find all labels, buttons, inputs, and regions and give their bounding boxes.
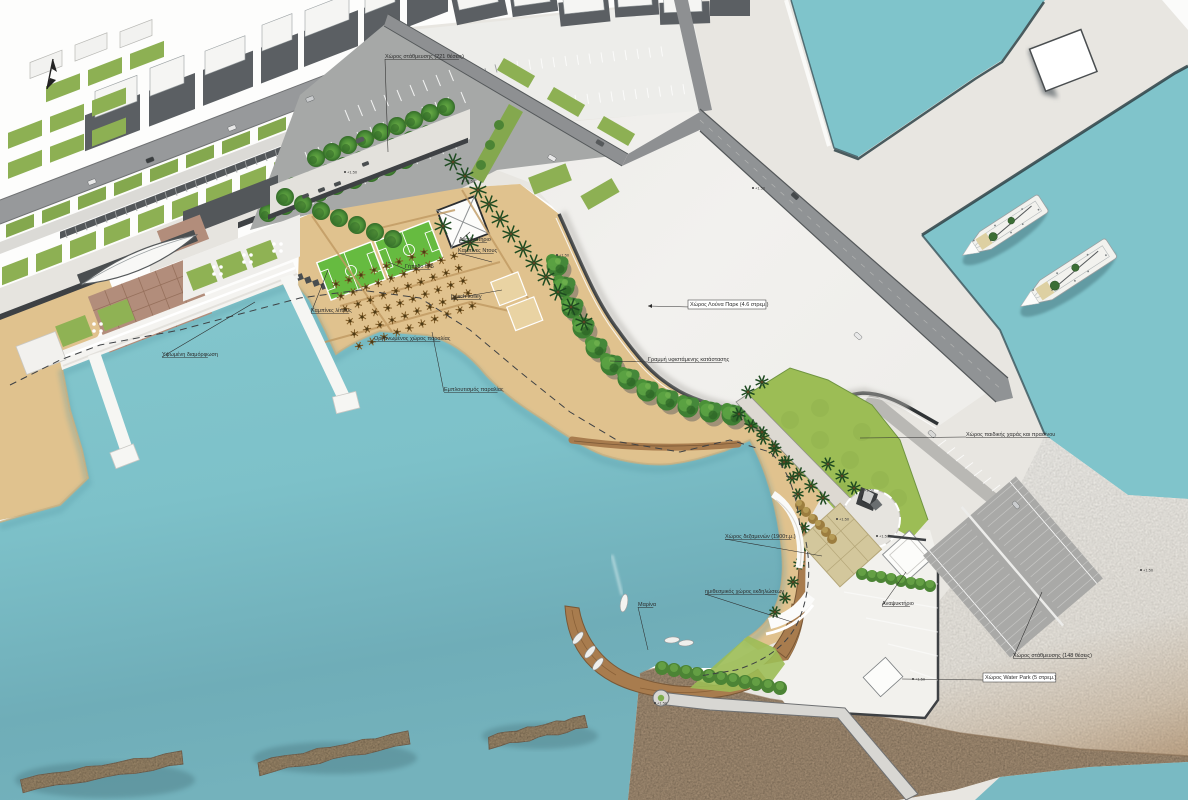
svg-text:+1.50: +1.50 [657,701,668,706]
svg-text:+1.50: +1.50 [879,534,890,539]
svg-text:Καμπίνες Ντους: Καμπίνες Ντους [458,248,497,254]
svg-text:Υψωμένη διαμόρφωση: Υψωμένη διαμόρφωση [162,351,218,358]
svg-text:Χώρος στάθμευσης (221 θέσεις): Χώρος στάθμευσης (221 θέσεις) [385,53,464,60]
svg-text:beach volley: beach volley [451,294,482,300]
svg-text:ημιθεσμικός χώρος εκδηλώσεων: ημιθεσμικός χώρος εκδηλώσεων [705,588,784,595]
svg-text:Καμπίνες λίπους: Καμπίνες λίπους [311,308,352,314]
svg-text:Χώρος Water Park (5 στρεμ.): Χώρος Water Park (5 στρεμ.) [985,674,1056,681]
svg-text:Οργανωμένος χώρος παραλίας: Οργανωμένος χώρος παραλίας [374,335,451,342]
svg-text:+1.50: +1.50 [1143,568,1154,573]
svg-text:Γήπεδο 5x5: Γήπεδο 5x5 [405,263,434,270]
svg-text:+1.50: +1.50 [347,170,358,175]
svg-text:Χώρος στάθμευσης (148 θέσεις): Χώρος στάθμευσης (148 θέσεις) [1013,652,1092,659]
svg-text:Αναψυκτήριο: Αναψυκτήριο [459,236,491,243]
svg-text:Γραμμή υφιστάμενης κατάστασης: Γραμμή υφιστάμενης κατάστασης [648,356,730,363]
svg-text:Χώρος παιδικής χαράς και πρασί: Χώρος παιδικής χαράς και πρασίνου [966,431,1055,438]
svg-text:+1.50: +1.50 [559,253,570,258]
svg-text:Αναψυκτήριο: Αναψυκτήριο [882,600,914,607]
svg-text:+1.50: +1.50 [839,517,850,522]
svg-text:Εμπλουτισμός παραλίας: Εμπλουτισμός παραλίας [444,386,504,393]
svg-text:+1.50: +1.50 [864,488,875,493]
svg-text:Χώρος Λούνα Παρκ (4.6 στρεμ.): Χώρος Λούνα Παρκ (4.6 στρεμ.) [690,301,769,308]
svg-text:+1.50: +1.50 [755,186,766,191]
svg-text:Χώρος δεξαμενών (1900τ.μ.): Χώρος δεξαμενών (1900τ.μ.) [725,533,796,540]
svg-text:Μαρίνα: Μαρίνα [638,602,657,608]
svg-text:+1.50: +1.50 [465,179,476,184]
